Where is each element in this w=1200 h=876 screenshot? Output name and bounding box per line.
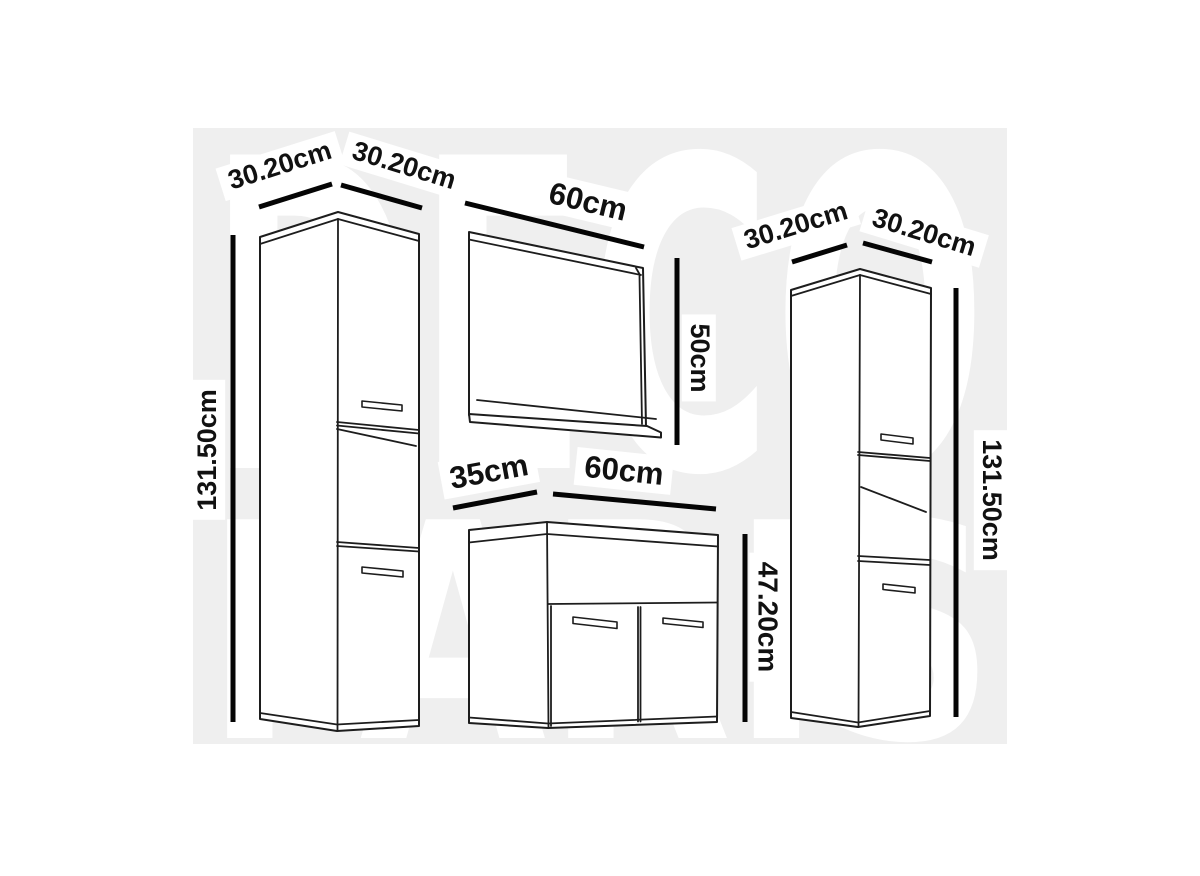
left-cabinet-drawing (260, 212, 419, 731)
vanity-drawing (469, 522, 718, 728)
label-vanity-height: 47.20cm (750, 553, 785, 682)
label-left-cabinet-height: 131.50cm (191, 380, 225, 520)
label-right-cabinet-height: 131.50cm (974, 430, 1008, 570)
label-mirror-height: 50cm (682, 314, 716, 401)
diagram-canvas: DECO PARIS (0, 0, 1200, 876)
bathroom-set-diagram: DECO PARIS (0, 0, 1200, 876)
right-cabinet-drawing (791, 269, 931, 727)
